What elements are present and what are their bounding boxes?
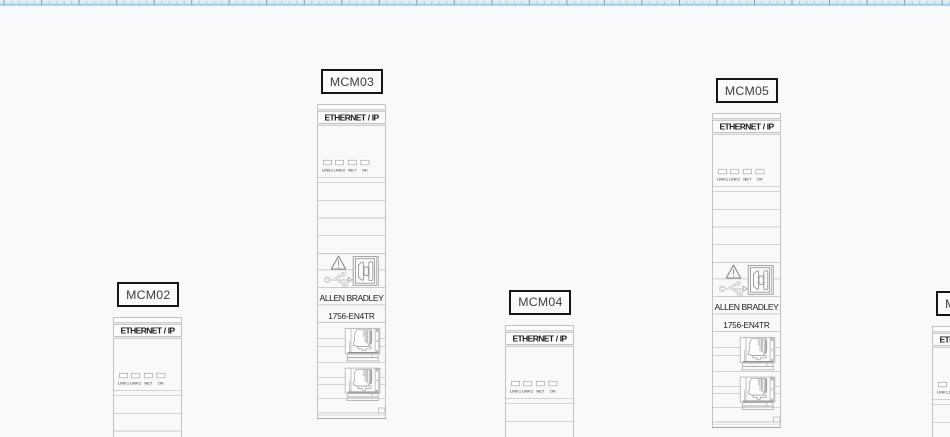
svg-text:NET: NET [537,388,546,393]
svg-text:1756-EN4TR: 1756-EN4TR [723,320,770,330]
svg-text:LINK2: LINK2 [522,388,534,393]
svg-text:NET: NET [145,381,154,386]
svg-text:OK: OK [550,388,556,393]
svg-text:ETHERNET / IP: ETHERNET / IP [324,113,379,123]
svg-text:LINK1: LINK1 [118,381,130,386]
svg-text:ALLEN BRADLEY: ALLEN BRADLEY [319,293,384,303]
svg-text:LINK1: LINK1 [322,168,334,173]
svg-text:ETHERNET / IP: ETHERNET / IP [719,122,774,132]
svg-text:NET: NET [348,168,357,173]
svg-text:LINK2: LINK2 [334,168,346,173]
svg-text:OK: OK [158,381,164,386]
svg-text:LINK2: LINK2 [130,381,142,386]
svg-text:ETHERNET / IP: ETHERNET / IP [513,333,568,343]
svg-text:LINK1: LINK1 [937,390,949,395]
svg-text:ETHERNET / IP: ETHERNET / IP [940,335,950,345]
svg-text:OK: OK [757,177,763,182]
svg-text:OK: OK [362,168,368,173]
svg-text:NET: NET [743,177,752,182]
svg-text:1756-EN4TR: 1756-EN4TR [328,311,375,321]
svg-text:ALLEN BRADLEY: ALLEN BRADLEY [714,302,779,312]
svg-text:ETHERNET / IP: ETHERNET / IP [121,326,176,336]
svg-text:LINK1: LINK1 [717,177,729,182]
svg-text:LINK1: LINK1 [510,388,522,393]
svg-text:LINK2: LINK2 [729,177,741,182]
